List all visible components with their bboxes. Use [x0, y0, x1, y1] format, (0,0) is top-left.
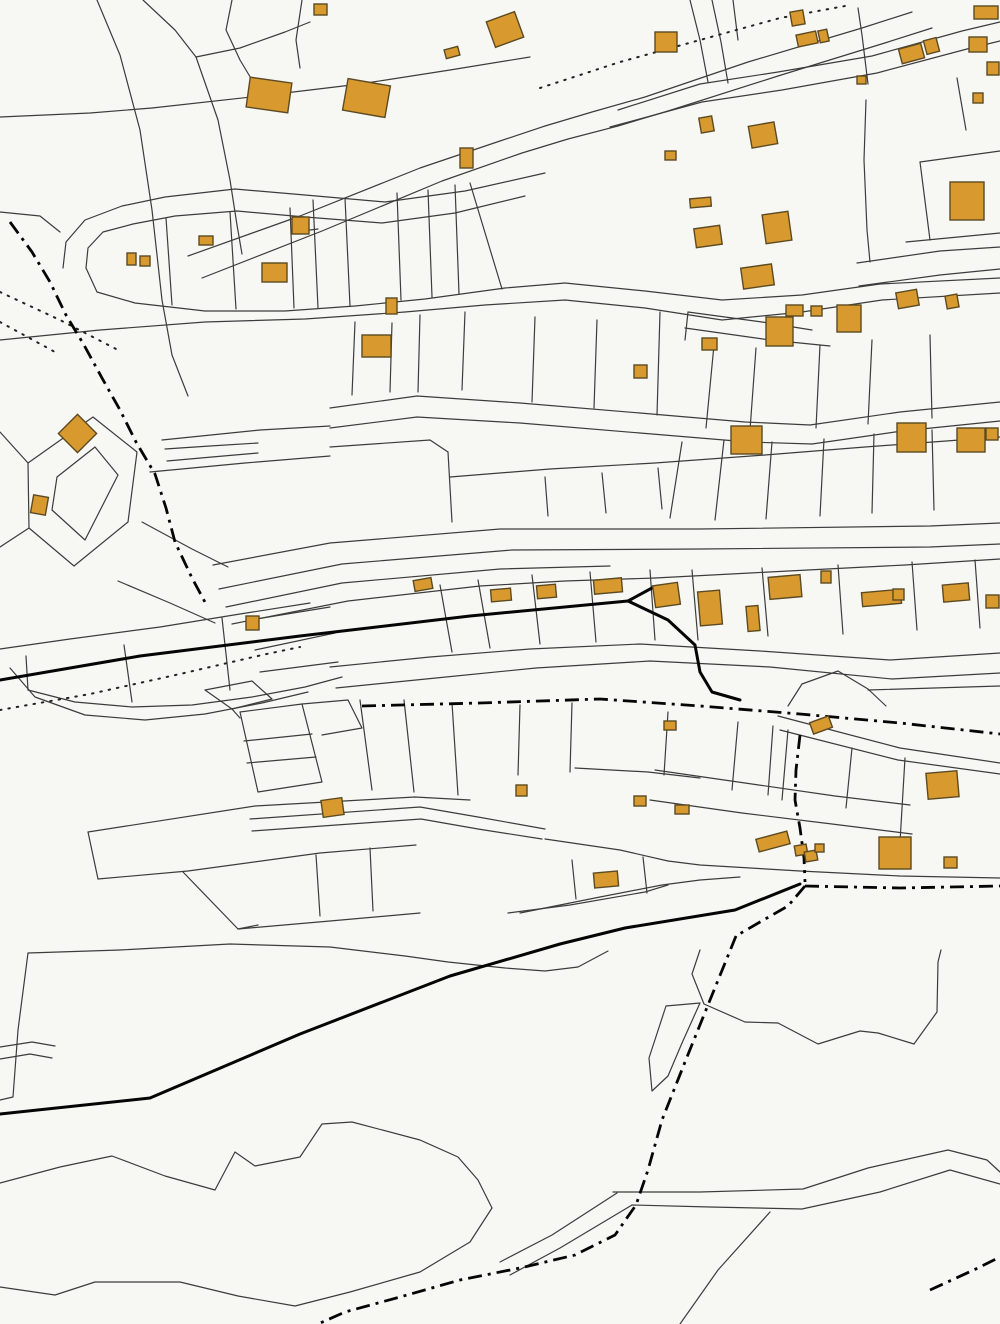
building-footprint: [746, 606, 760, 632]
building-footprint: [815, 844, 824, 852]
building-footprint: [140, 256, 150, 266]
building-footprint: [811, 306, 822, 316]
building-footprint: [837, 305, 861, 332]
building-footprint: [945, 294, 959, 309]
building-footprint: [593, 871, 618, 888]
building-footprint: [343, 79, 391, 118]
building-footprint: [655, 32, 677, 52]
building-footprint: [879, 837, 911, 869]
building-footprint: [31, 495, 49, 515]
building-footprint: [973, 93, 983, 103]
building-footprint: [741, 264, 775, 289]
building-footprint: [986, 595, 999, 608]
building-footprint: [702, 338, 717, 350]
building-footprint: [127, 253, 136, 265]
building-footprint: [974, 6, 998, 19]
building-footprint: [698, 590, 723, 626]
building-footprint: [593, 578, 622, 594]
building-footprint: [762, 211, 792, 243]
building-footprint: [690, 197, 712, 208]
building-footprint: [653, 582, 681, 607]
building-footprint: [986, 428, 998, 440]
building-footprint: [246, 77, 292, 113]
building-footprint: [896, 289, 919, 308]
building-footprint: [987, 62, 999, 75]
building-footprint: [199, 236, 213, 245]
building-footprint: [699, 116, 714, 133]
building-footprint: [768, 575, 802, 600]
building-footprint: [536, 584, 556, 599]
building-footprint: [634, 796, 646, 806]
building-footprint: [675, 805, 689, 814]
building-footprint: [321, 798, 344, 818]
building-footprint: [923, 38, 939, 55]
building-footprint: [942, 583, 969, 602]
building-footprint: [362, 335, 391, 357]
building-footprint: [516, 785, 527, 796]
cadastral-map-viewport[interactable]: [0, 0, 1000, 1324]
building-footprint: [460, 148, 473, 168]
building-footprint: [491, 588, 512, 602]
building-footprint: [957, 428, 985, 452]
building-footprint: [897, 423, 926, 452]
building-footprint: [246, 616, 259, 630]
cadastral-map[interactable]: [0, 0, 1000, 1324]
building-footprint: [926, 771, 959, 800]
building-footprint: [634, 365, 647, 378]
building-footprint: [950, 182, 984, 220]
building-footprint: [665, 151, 676, 160]
building-footprint: [292, 217, 309, 234]
building-footprint: [731, 426, 762, 454]
building-footprint: [694, 225, 722, 247]
building-footprint: [314, 4, 327, 15]
building-footprint: [413, 578, 433, 592]
building-footprint: [944, 857, 957, 868]
building-footprint: [786, 305, 803, 316]
building-footprint: [766, 317, 793, 346]
building-footprint: [969, 37, 987, 52]
building-footprint: [790, 10, 805, 26]
building-footprint: [664, 721, 676, 730]
building-footprint: [857, 76, 866, 84]
building-footprint: [818, 29, 829, 43]
building-footprint: [748, 122, 777, 148]
building-footprint: [262, 263, 287, 282]
building-footprint: [386, 298, 397, 314]
building-footprint: [821, 571, 831, 583]
building-footprint: [893, 589, 904, 600]
